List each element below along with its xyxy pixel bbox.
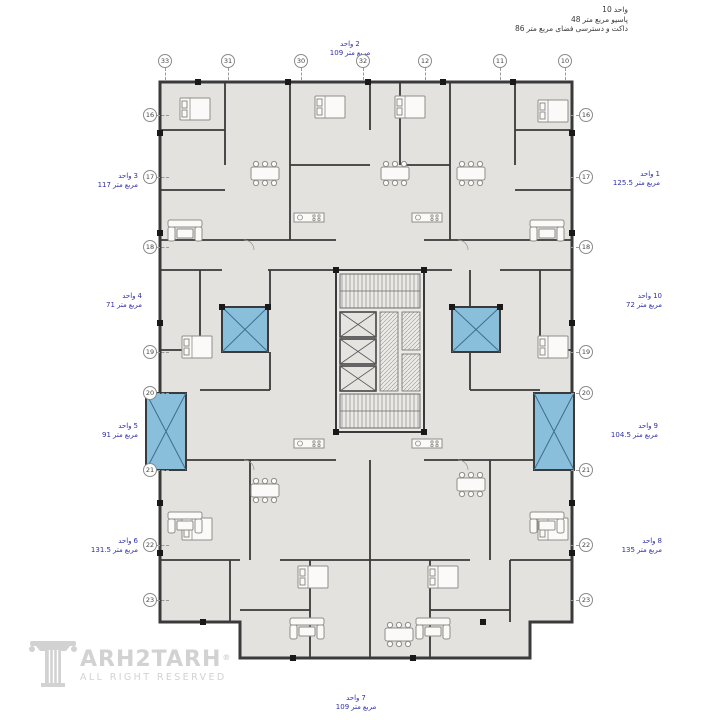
grid-bubble-label: 17 <box>582 173 590 181</box>
duct-shaft-icon <box>402 354 420 391</box>
grid-bubble-label: 16 <box>146 111 154 119</box>
grid-bubble: 30 <box>294 54 308 68</box>
unit-area: 131.5مترمربع <box>72 546 138 555</box>
column-logo-icon <box>28 634 78 692</box>
unit-label-6: واحد6 131.5مترمربع <box>72 537 138 554</box>
bed-icon <box>395 96 425 118</box>
dining-table-icon <box>385 622 413 646</box>
registered-mark: ® <box>222 646 231 670</box>
grid-bubble-label: 23 <box>146 596 154 604</box>
bed-icon <box>428 566 458 588</box>
grid-bubble-label: 33 <box>161 57 169 65</box>
unit-name: واحد8 <box>598 537 662 546</box>
unit-name: واحد4 <box>78 292 142 301</box>
grid-bubble: 18 <box>579 240 593 254</box>
dining-table-icon <box>381 161 409 185</box>
bed-icon <box>298 566 328 588</box>
unit-label-2: واحد2 109مترمربع <box>312 40 388 57</box>
dining-table-icon <box>251 478 279 502</box>
grid-bubble-label: 19 <box>582 348 590 356</box>
grid-bubble: 11 <box>493 54 507 68</box>
annotation-line-patio: 48مترمربعپاسیو <box>571 15 628 25</box>
floor-plan-svg <box>140 70 600 670</box>
bed-icon <box>538 336 568 358</box>
sofa-icon <box>168 512 202 533</box>
kitchen-counter-icon <box>412 439 442 448</box>
logo-brand: ARH2TARH ® <box>80 648 231 672</box>
unit-name: واحد2 <box>312 40 388 49</box>
grid-bubble-label: 17 <box>146 173 154 181</box>
grid-bubble-label: 12 <box>421 57 429 65</box>
unit-area: 104.5مترمربع <box>594 431 658 440</box>
grid-bubble-label: 20 <box>582 389 590 397</box>
grid-bubble: 20 <box>143 386 157 400</box>
grid-bubble-label: 31 <box>224 57 232 65</box>
grid-bubble: 16 <box>143 108 157 122</box>
grid-bubble: 17 <box>579 170 593 184</box>
duct-shaft-icon <box>402 312 420 350</box>
grid-bubble: 19 <box>579 345 593 359</box>
annotation-line-access: 86مترمربعفضایدسترسیوداکت <box>515 24 628 34</box>
grid-bubble-label: 10 <box>561 57 569 65</box>
unit-name: واحد5 <box>74 422 138 431</box>
unit-area: 109مترمربع <box>312 49 388 58</box>
unit-label-10: واحد10 72مترمربع <box>598 292 662 309</box>
grid-bubble-label: 21 <box>582 466 590 474</box>
sofa-icon <box>290 618 324 639</box>
unit-area: 135مترمربع <box>598 546 662 555</box>
unit-area: 109مترمربع <box>318 703 394 712</box>
sofa-icon <box>416 618 450 639</box>
grid-bubble: 18 <box>143 240 157 254</box>
grid-bubble-label: 20 <box>146 389 154 397</box>
grid-bubble: 10 <box>558 54 572 68</box>
dining-table-icon <box>457 161 485 185</box>
sofa-icon <box>168 220 202 241</box>
kitchen-counter-icon <box>294 439 324 448</box>
unit-label-9: واحد9 104.5مترمربع <box>594 422 658 439</box>
unit-label-5: واحد5 91مترمربع <box>74 422 138 439</box>
grid-bubble: 21 <box>579 463 593 477</box>
sofa-icon <box>530 512 564 533</box>
grid-bubble-label: 18 <box>146 243 154 251</box>
grid-bubble: 16 <box>579 108 593 122</box>
unit-area: 125.5مترمربع <box>596 179 660 188</box>
grid-bubble: 23 <box>143 593 157 607</box>
grid-bubble-label: 22 <box>146 541 154 549</box>
bed-icon <box>315 96 345 118</box>
unit-label-8: واحد8 135مترمربع <box>598 537 662 554</box>
dining-table-icon <box>457 472 485 496</box>
grid-bubble-label: 30 <box>297 57 305 65</box>
unit-label-7: واحد7 109مترمربع <box>318 694 394 711</box>
floor-plan-page: { "annotation": { "lines": ["10 واحد", "… <box>0 0 720 720</box>
grid-bubble: 31 <box>221 54 235 68</box>
logo-brand-text: ARH2TARH <box>80 648 221 672</box>
grid-bubble-label: 32 <box>359 57 367 65</box>
unit-name: واحد9 <box>594 422 658 431</box>
grid-bubble: 23 <box>579 593 593 607</box>
unit-area: 72مترمربع <box>598 301 662 310</box>
duct-shaft-icon <box>380 312 398 391</box>
grid-bubble: 32 <box>356 54 370 68</box>
bed-icon <box>180 98 210 120</box>
unit-area: 71مترمربع <box>78 301 142 310</box>
grid-bubble: 33 <box>158 54 172 68</box>
grid-bubble-label: 18 <box>582 243 590 251</box>
grid-bubble-label: 22 <box>582 541 590 549</box>
grid-bubble-label: 21 <box>146 466 154 474</box>
logo-tagline: ALL RIGHT RESERVED <box>80 672 231 684</box>
sofa-icon <box>530 220 564 241</box>
unit-label-3: واحد3 117مترمربع <box>74 172 138 189</box>
unit-label-4: واحد4 71مترمربع <box>78 292 142 309</box>
central-core <box>336 270 424 432</box>
unit-name: واحد6 <box>72 537 138 546</box>
grid-bubble-label: 23 <box>582 596 590 604</box>
unit-name: واحد10 <box>598 292 662 301</box>
grid-bubble: 22 <box>143 538 157 552</box>
grid-bubble: 12 <box>418 54 432 68</box>
grid-bubble: 22 <box>579 538 593 552</box>
floor-plan <box>140 70 600 670</box>
grid-bubble-label: 11 <box>496 57 504 65</box>
dining-table-icon <box>251 161 279 185</box>
kitchen-counter-icon <box>294 213 324 222</box>
grid-bubble: 17 <box>143 170 157 184</box>
area-annotation: 10واحد 48مترمربعپاسیو 86مترمربعفضایدسترس… <box>515 5 628 34</box>
unit-name: واحد3 <box>74 172 138 181</box>
grid-bubble-label: 16 <box>582 111 590 119</box>
grid-bubble: 20 <box>579 386 593 400</box>
grid-bubble: 19 <box>143 345 157 359</box>
logo-tarh2tarh: ARH2TARH ® ALL RIGHT RESERVED <box>28 634 231 692</box>
annotation-line-units: 10واحد <box>602 5 628 15</box>
bed-icon <box>182 336 212 358</box>
grid-bubble-label: 19 <box>146 348 154 356</box>
unit-label-1: واحد1 125.5مترمربع <box>596 170 660 187</box>
grid-bubble: 21 <box>143 463 157 477</box>
unit-name: واحد1 <box>596 170 660 179</box>
unit-area: 91مترمربع <box>74 431 138 440</box>
unit-name: واحد7 <box>318 694 394 703</box>
bed-icon <box>538 100 568 122</box>
kitchen-counter-icon <box>412 213 442 222</box>
unit-area: 117مترمربع <box>74 181 138 190</box>
